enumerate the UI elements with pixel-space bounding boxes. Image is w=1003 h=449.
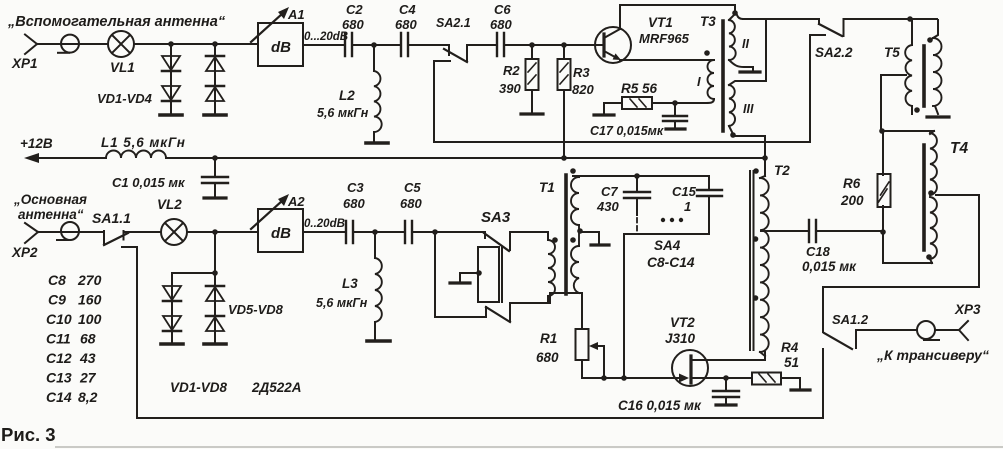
svg-text:I: I	[697, 74, 701, 89]
svg-text:5,6 мкГн: 5,6 мкГн	[316, 296, 368, 310]
svg-text:R1: R1	[540, 331, 557, 346]
svg-text:0,015 мк: 0,015 мк	[802, 259, 857, 274]
svg-text:C7: C7	[601, 184, 618, 199]
svg-text:C18: C18	[806, 244, 831, 259]
svg-text:A2: A2	[287, 194, 305, 209]
svg-text:43: 43	[79, 350, 96, 366]
svg-text:820: 820	[572, 82, 594, 97]
svg-text:R5 56: R5 56	[621, 81, 658, 96]
svg-text:VD1-VD8: VD1-VD8	[170, 380, 228, 395]
svg-text:C14: C14	[46, 389, 72, 405]
svg-text:T4: T4	[950, 140, 968, 157]
svg-text:270: 270	[77, 272, 102, 288]
svg-text:C12: C12	[46, 350, 72, 366]
svg-text:dB: dB	[271, 39, 291, 56]
svg-text:430: 430	[596, 199, 619, 214]
svg-text:C6: C6	[494, 2, 511, 17]
svg-text:C10: C10	[46, 311, 72, 327]
svg-text:C1 0,015 мк: C1 0,015 мк	[112, 175, 186, 190]
svg-text:100: 100	[78, 311, 102, 327]
svg-text:680: 680	[343, 196, 365, 211]
svg-text:+12В: +12В	[20, 136, 53, 151]
svg-text:0...20dB: 0...20dB	[304, 31, 348, 43]
svg-text:C8-C14: C8-C14	[647, 255, 695, 270]
svg-text:T2: T2	[774, 163, 790, 178]
svg-text:C13: C13	[46, 370, 72, 386]
svg-text:L2: L2	[339, 88, 355, 103]
svg-text:XP1: XP1	[11, 56, 38, 71]
svg-text:R6: R6	[843, 176, 861, 191]
svg-text:R2: R2	[503, 63, 520, 78]
svg-text:SA3: SA3	[481, 209, 511, 226]
svg-text:C11: C11	[46, 331, 71, 347]
svg-text:SA4: SA4	[654, 238, 681, 253]
svg-text:T3: T3	[700, 14, 716, 29]
svg-text:200: 200	[840, 193, 864, 208]
svg-text:J310: J310	[665, 331, 696, 346]
svg-text:VT2: VT2	[670, 315, 695, 330]
svg-text:dB: dB	[271, 225, 291, 242]
svg-text:XP2: XP2	[11, 245, 38, 260]
svg-text:SA2.2: SA2.2	[815, 45, 853, 60]
svg-text:680: 680	[536, 350, 559, 365]
svg-text:„Основная: „Основная	[13, 192, 87, 207]
svg-text:VD5-VD8: VD5-VD8	[228, 302, 284, 317]
svg-text:L3: L3	[342, 276, 358, 291]
svg-text:390: 390	[499, 81, 521, 96]
svg-text:8,2: 8,2	[78, 389, 98, 405]
svg-text:XP3: XP3	[954, 302, 981, 317]
svg-text:680: 680	[342, 17, 364, 32]
svg-text:T5: T5	[884, 45, 900, 60]
svg-text:A1: A1	[287, 7, 305, 22]
svg-text:5,6 мкГн: 5,6 мкГн	[317, 106, 369, 120]
svg-text:„К трансиверу“: „К трансиверу“	[876, 347, 989, 363]
svg-text:VD1-VD4: VD1-VD4	[97, 91, 153, 106]
svg-text:„Вспомогательная антенна“: „Вспомогательная антенна“	[7, 14, 226, 30]
svg-text:C3: C3	[347, 180, 364, 195]
svg-text:L1 5,6 мкГн: L1 5,6 мкГн	[101, 135, 186, 150]
svg-text:51: 51	[784, 355, 799, 370]
svg-text:C8: C8	[48, 272, 66, 288]
svg-text:C2: C2	[346, 2, 363, 17]
svg-text:680: 680	[490, 17, 512, 32]
svg-text:C9: C9	[48, 292, 66, 308]
svg-text:C4: C4	[399, 2, 416, 17]
svg-text:C5: C5	[404, 180, 421, 195]
svg-text:III: III	[743, 102, 754, 116]
svg-text:R4: R4	[781, 340, 799, 355]
svg-text:Рис. 3: Рис. 3	[1, 424, 56, 445]
svg-text:R3: R3	[573, 65, 590, 80]
svg-text:VT1: VT1	[648, 15, 673, 30]
svg-text:680: 680	[395, 17, 417, 32]
svg-text:0..20dB: 0..20dB	[304, 218, 345, 230]
svg-text:C15: C15	[672, 184, 697, 199]
svg-text:SA1.2: SA1.2	[832, 312, 869, 327]
svg-text:160: 160	[78, 292, 102, 308]
svg-text:680: 680	[400, 196, 422, 211]
svg-text:C16 0,015 мк: C16 0,015 мк	[618, 398, 702, 413]
svg-text:2Д522А: 2Д522А	[251, 380, 302, 395]
svg-text:27: 27	[79, 370, 97, 386]
svg-text:1: 1	[684, 199, 691, 214]
svg-text:SA1.1: SA1.1	[92, 210, 131, 226]
svg-text:T1: T1	[539, 180, 555, 195]
svg-text:SA2.1: SA2.1	[436, 16, 471, 30]
svg-text:VL2: VL2	[157, 197, 182, 212]
svg-text:антенна“: антенна“	[18, 207, 84, 222]
svg-text:II: II	[742, 37, 749, 51]
svg-text:VL1: VL1	[110, 60, 135, 75]
svg-text:C17 0,015мк: C17 0,015мк	[590, 124, 664, 138]
svg-text:68: 68	[80, 331, 96, 347]
svg-text:MRF965: MRF965	[639, 31, 690, 46]
